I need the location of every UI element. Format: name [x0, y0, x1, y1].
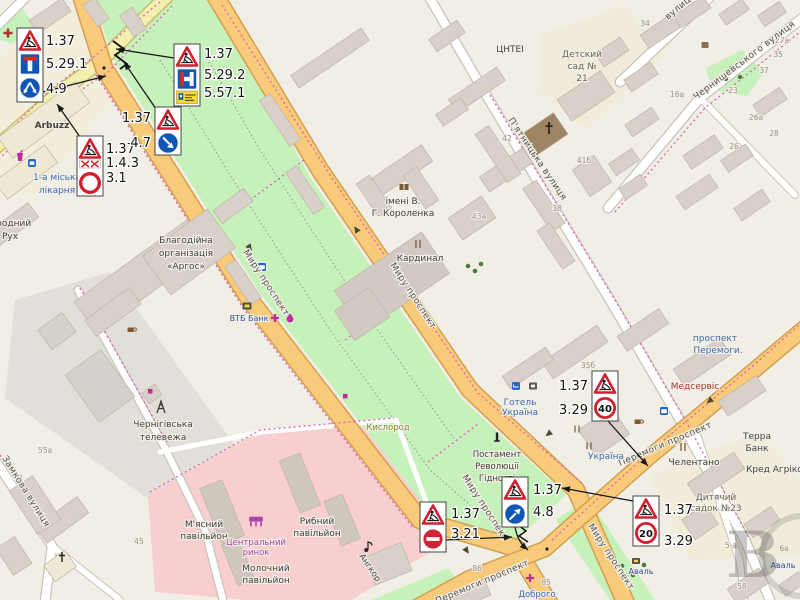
- poi-rukh: Рух: [2, 232, 19, 242]
- poi-hotel-ukraina: Готель: [504, 398, 537, 408]
- poi-hospital: лікарня: [39, 186, 75, 196]
- lane-info-sign-icon: [177, 91, 198, 104]
- poi-fish-pavilion: павільйон: [293, 529, 341, 539]
- poi-korolenka-library: Г. Короленка: [372, 209, 434, 219]
- bank-icon: [243, 303, 252, 310]
- map-viewport[interactable]: 34 42 40 38 41б 43а 35б 16а 23 27а 35 37…: [0, 0, 800, 600]
- poi-monument: Революції: [475, 462, 519, 472]
- sign-code-label: 5.29.2: [204, 68, 245, 83]
- no-entry-sign-icon: [423, 529, 443, 549]
- sign-code-label: 3.29: [559, 403, 588, 418]
- sign-cluster-7[interactable]: [502, 477, 528, 527]
- map-canvas[interactable]: 34 42 40 38 41б 43а 35б 16а 23 27а 35 37…: [0, 0, 800, 600]
- sign-cluster-1[interactable]: [17, 28, 43, 102]
- poi-kindergarten21: 21: [576, 74, 587, 84]
- pass-either-side-sign-icon: [20, 78, 40, 98]
- house-number: 16а: [670, 90, 684, 99]
- poi-meat-pavilion: павільйон: [180, 532, 228, 542]
- pass-left-sign-icon: [505, 504, 525, 524]
- bus-stop-icon: [660, 407, 669, 416]
- poi-hotel-ukraina: Україна: [502, 408, 538, 418]
- poi-fish-pavilion: Рибний: [300, 517, 335, 527]
- sign-cluster-5[interactable]: 40: [592, 371, 618, 421]
- poi-terra-bank: Банк: [745, 444, 769, 454]
- sign-code-label: 1.37: [664, 503, 693, 518]
- poi-arbuzz: Arbuzz: [35, 121, 70, 131]
- bank-icon: [632, 558, 640, 564]
- dead-end-sign-icon: [21, 54, 40, 74]
- poi-milk-pavilion: Молочний: [242, 564, 290, 574]
- poi-kindergarten21: сад №: [568, 62, 597, 72]
- sign-cluster-6[interactable]: [420, 502, 446, 552]
- house-number: 26: [729, 142, 739, 151]
- house-number: 42: [502, 134, 512, 143]
- house-number: 43а: [472, 212, 486, 221]
- speed-limit-sign-icon: 40: [595, 398, 614, 417]
- sign-code-label: 1.37: [559, 379, 588, 394]
- sign-code-label: 1.37: [46, 34, 75, 49]
- shop-dot-icon: [148, 389, 153, 394]
- poi-monument: Постамент: [473, 450, 522, 460]
- house-number: 28: [769, 129, 779, 138]
- poi-argos: «Аргос»: [167, 262, 205, 272]
- poi-central-market: ринок: [243, 548, 270, 558]
- poi-kred-agricole: Кред Агріколь: [746, 465, 800, 475]
- pass-right-sign-icon: [158, 133, 178, 153]
- poi-kardynal: Кардинал: [397, 254, 444, 264]
- sign-code-label: 1.37: [204, 47, 233, 62]
- poi-milk-pavilion: павільйон: [242, 576, 290, 586]
- poi-korolenka-library: імені В.: [385, 197, 420, 207]
- poi-peremohy-prospekt: Перемоги.: [693, 346, 742, 356]
- poi-kindergarten21: Детский: [562, 50, 602, 60]
- poi-tv-tower: Чернігівська: [133, 420, 193, 430]
- house-number: 23: [728, 86, 738, 95]
- poi-vtb-bank: ВТБ Банк: [230, 314, 269, 323]
- poi-medservis: Медсервіс: [671, 382, 720, 392]
- poi-kindergarten23: садок №23: [690, 504, 741, 514]
- sign-code-label: 3.1: [106, 171, 127, 186]
- bus-stop-icon: [28, 159, 36, 167]
- sign-cluster-3[interactable]: [77, 136, 103, 196]
- sign-code-label: 4.9: [46, 82, 67, 97]
- poi-kindergarten23: Дитячий: [696, 493, 737, 503]
- money-icon: [529, 383, 537, 390]
- crossing-marker-sign-icon: [80, 160, 101, 168]
- house-number: 35б: [581, 361, 596, 370]
- dead-end-sign-icon: [178, 69, 197, 89]
- house-number: 86: [472, 564, 482, 573]
- poi-dobroho: Доброго: [518, 590, 555, 600]
- sign-code-label: 4.7: [130, 136, 151, 151]
- watermark-letter: В: [726, 518, 780, 593]
- house-number: 6а: [779, 544, 788, 553]
- shop-dot-icon: [343, 394, 348, 399]
- sign-cluster-2[interactable]: [174, 44, 200, 106]
- house-number: 26а: [749, 113, 763, 122]
- house-number: 37: [759, 66, 769, 75]
- poi-terra-bank: Терра: [742, 432, 771, 442]
- sign-code-label: 1.37: [533, 483, 562, 498]
- house-number: 34: [640, 19, 650, 28]
- house-number: 55а: [38, 446, 52, 455]
- poi-argos: Благодійна: [159, 236, 213, 246]
- sign-code-label: 5.57.1: [204, 86, 245, 101]
- speed-limit-value: 20: [639, 529, 653, 540]
- poi-meat-pavilion: М'ясний: [185, 520, 223, 530]
- hotel-icon: [512, 382, 520, 390]
- house-number: 38: [552, 204, 562, 213]
- house-number: 35: [773, 50, 783, 59]
- poi-tsntei: ЦНТЕІ: [496, 45, 524, 55]
- poi-chelentano: Челентано: [668, 458, 720, 468]
- no-vehicles-sign-icon: [81, 174, 100, 193]
- house-number: 45: [134, 537, 144, 546]
- sign-code-label: 4.8: [533, 505, 554, 520]
- poi-aval-bank: Аваль: [629, 567, 654, 576]
- house-number: 85: [541, 578, 551, 587]
- library-book-icon: [400, 184, 409, 190]
- poi-argos: організація: [159, 249, 213, 259]
- poi-kyslorod: Кислород: [366, 423, 409, 433]
- sign-cluster-8[interactable]: 20: [633, 496, 659, 546]
- poi-ukraina: Україна: [588, 452, 624, 462]
- poi-peremohy-prospekt: проспект: [693, 334, 737, 344]
- sign-cluster-4[interactable]: [155, 107, 181, 155]
- sign-code-label: 3.29: [664, 534, 693, 549]
- sign-code-label: 5.29.1: [46, 57, 87, 72]
- sign-code-label: 1.37: [451, 507, 480, 522]
- house-number: 41б: [577, 156, 592, 165]
- poi-rukh: народний: [0, 219, 31, 229]
- speed-limit-value: 40: [598, 404, 612, 415]
- cafe-icon: [702, 42, 709, 48]
- poi-central-market: Центральний: [226, 538, 286, 548]
- sign-code-label: 1.37: [122, 111, 151, 126]
- poi-hospital: 1-а міська: [33, 173, 81, 183]
- sign-code-label: 1.4.3: [106, 156, 139, 171]
- junction-dot: [545, 547, 548, 550]
- speed-limit-sign-icon: 20: [636, 523, 655, 542]
- sign-code-label: 3.21: [451, 527, 480, 542]
- junction-dot: [102, 66, 105, 69]
- poi-tv-tower: телевежа: [140, 433, 187, 443]
